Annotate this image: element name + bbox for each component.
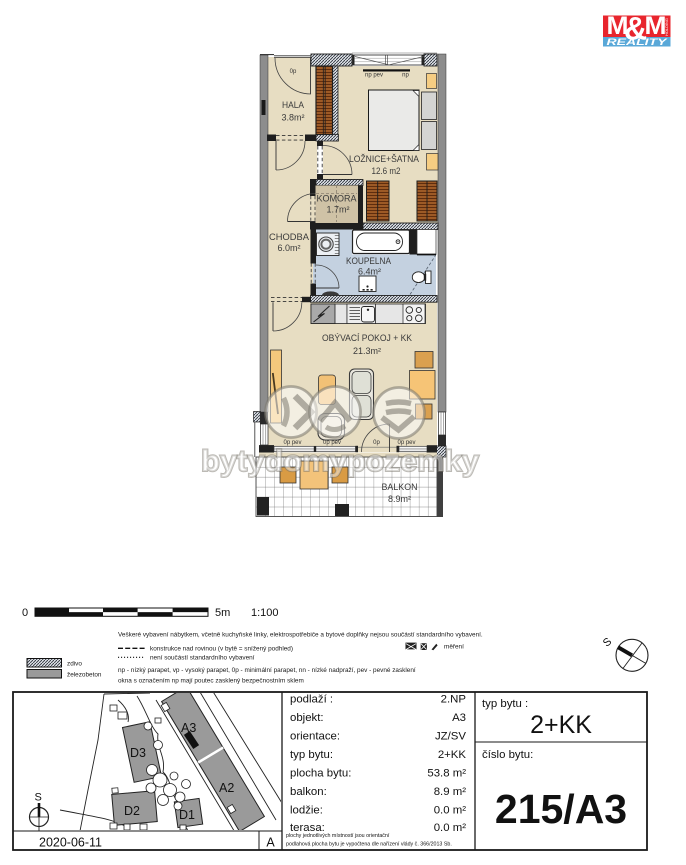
svg-text:A3: A3 xyxy=(181,721,196,735)
svg-text:8.9 m²: 8.9 m² xyxy=(434,786,466,798)
svg-text:HOLDING: HOLDING xyxy=(664,18,669,36)
svg-text:podlahová plocha bytu je vypoč: podlahová plocha bytu je vypočtena dle n… xyxy=(286,842,452,848)
svg-text:typ bytu:: typ bytu: xyxy=(290,749,333,761)
svg-text:D1: D1 xyxy=(179,808,195,822)
svg-text:železobeton: železobeton xyxy=(67,672,102,679)
svg-text:A2: A2 xyxy=(219,781,234,795)
svg-text:CHODBA: CHODBA xyxy=(269,232,310,243)
svg-text:0p: 0p xyxy=(290,69,297,75)
svg-text:D2: D2 xyxy=(124,804,140,818)
svg-text:Veškeré vybavení nábytkem, vče: Veškeré vybavení nábytkem, včetně kuchyň… xyxy=(118,632,483,639)
svg-text:53.8 m²: 53.8 m² xyxy=(427,768,466,780)
svg-text:2+KK: 2+KK xyxy=(530,711,592,739)
svg-text:typ bytu :: typ bytu : xyxy=(482,698,528,710)
svg-text:21.3m²: 21.3m² xyxy=(353,346,381,356)
svg-text:1:100: 1:100 xyxy=(251,607,279,619)
svg-text:zdivo: zdivo xyxy=(67,661,82,668)
svg-text:2.NP: 2.NP xyxy=(441,694,466,706)
svg-text:np pev: np pev xyxy=(365,73,383,79)
svg-text:8.9m²: 8.9m² xyxy=(388,494,411,504)
svg-text:A: A xyxy=(266,836,275,850)
svg-text:np: np xyxy=(402,73,409,79)
svg-text:D3: D3 xyxy=(130,746,146,760)
svg-text:LOŽNICE+ŠATNA: LOŽNICE+ŠATNA xyxy=(349,154,420,165)
svg-text:215/A3: 215/A3 xyxy=(495,786,627,832)
svg-text:5m: 5m xyxy=(215,607,230,619)
svg-text:HALA: HALA xyxy=(282,100,304,110)
svg-text:0.0 m²: 0.0 m² xyxy=(434,822,466,834)
svg-text:0: 0 xyxy=(22,607,28,619)
svg-text:podlaží :: podlaží : xyxy=(290,694,333,706)
svg-text:2+KK: 2+KK xyxy=(438,749,467,761)
svg-text:KOMORA: KOMORA xyxy=(317,194,358,205)
svg-text:plocha bytu:: plocha bytu: xyxy=(290,768,351,780)
svg-text:2020-06-11: 2020-06-11 xyxy=(39,836,102,850)
svg-text:konstrukce nad rovinou (v bytě: konstrukce nad rovinou (v bytě = snížený… xyxy=(150,646,293,653)
svg-text:BALKON: BALKON xyxy=(382,482,418,493)
svg-text:np - nízký parapet, vp - vysok: np - nízký parapet, vp - vysoký parapet,… xyxy=(118,667,416,674)
svg-text:měření: měření xyxy=(444,644,464,651)
svg-text:S: S xyxy=(35,792,42,804)
svg-text:KOUPELNA: KOUPELNA xyxy=(346,256,392,267)
svg-text:REALITY: REALITY xyxy=(607,37,669,48)
svg-text:bytydomypozemky: bytydomypozemky xyxy=(201,445,479,478)
svg-text:lodžie:: lodžie: xyxy=(290,805,323,817)
svg-text:6.0m²: 6.0m² xyxy=(277,243,300,253)
svg-text:OBÝVACÍ POKOJ + KK: OBÝVACÍ POKOJ + KK xyxy=(322,333,413,344)
svg-text:3.8m²: 3.8m² xyxy=(281,113,304,123)
svg-text:číslo bytu:: číslo bytu: xyxy=(482,749,533,761)
svg-text:12.6 m2: 12.6 m2 xyxy=(372,166,401,176)
svg-text:6.4m²: 6.4m² xyxy=(358,267,381,277)
svg-text:JZ/SV: JZ/SV xyxy=(435,731,466,743)
svg-text:0.0 m²: 0.0 m² xyxy=(434,805,466,817)
svg-text:okna s označením np mají poute: okna s označením np mají poutec zasklený… xyxy=(118,677,304,684)
svg-text:není součástí standardního vyb: není součástí standardního vybavení xyxy=(150,655,255,662)
svg-text:plochy jednotlivých místností: plochy jednotlivých místností jsou orien… xyxy=(286,833,390,839)
svg-text:balkon:: balkon: xyxy=(290,786,327,798)
svg-text:orientace:: orientace: xyxy=(290,731,340,743)
svg-text:objekt:: objekt: xyxy=(290,712,324,724)
svg-text:1.7m²: 1.7m² xyxy=(326,205,349,215)
svg-text:A3: A3 xyxy=(452,712,466,724)
